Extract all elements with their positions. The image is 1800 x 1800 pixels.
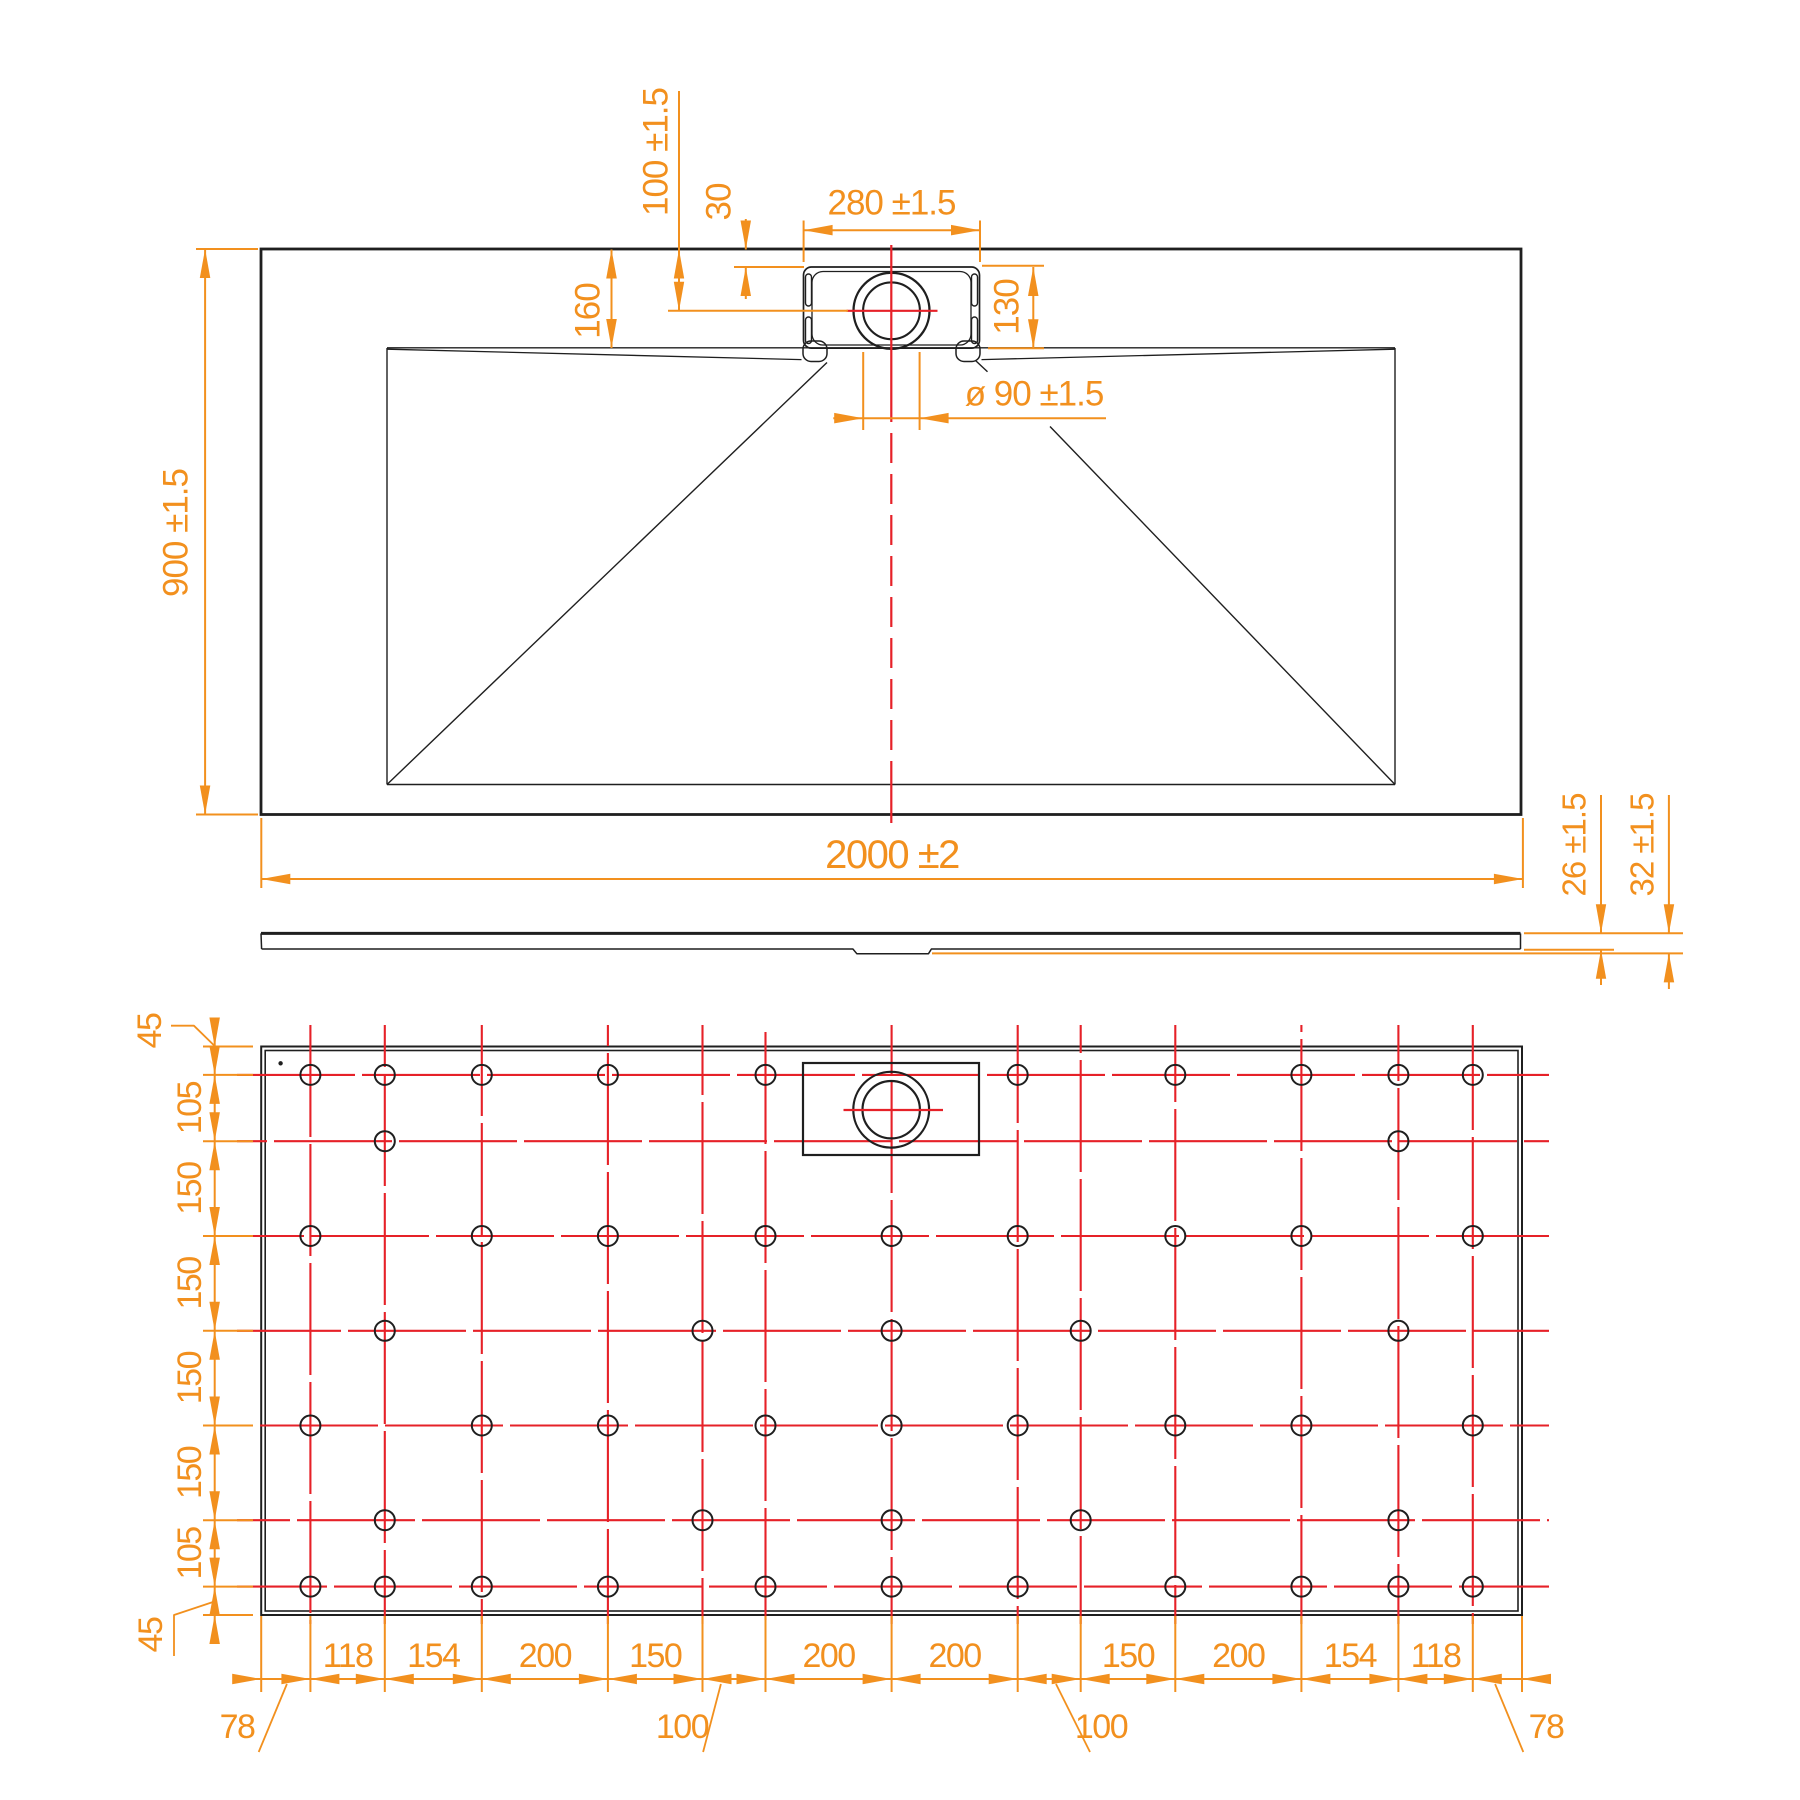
svg-text:150: 150	[629, 1637, 682, 1675]
svg-text:150: 150	[171, 1162, 209, 1215]
svg-text:200: 200	[928, 1637, 981, 1675]
svg-text:200: 200	[519, 1637, 572, 1675]
svg-text:200: 200	[1212, 1637, 1265, 1675]
svg-text:900 ±1.5: 900 ±1.5	[157, 469, 196, 597]
svg-text:130: 130	[988, 279, 1027, 335]
svg-text:150: 150	[1102, 1637, 1155, 1675]
svg-text:32 ±1.5: 32 ±1.5	[1624, 794, 1661, 897]
svg-text:78: 78	[220, 1708, 255, 1746]
svg-text:154: 154	[407, 1637, 460, 1675]
svg-text:118: 118	[323, 1637, 373, 1675]
svg-text:45: 45	[132, 1617, 170, 1652]
svg-text:45: 45	[131, 1013, 169, 1048]
svg-text:2000 ±2: 2000 ±2	[825, 833, 959, 877]
svg-text:78: 78	[1529, 1708, 1564, 1746]
svg-text:160: 160	[569, 283, 608, 339]
svg-text:26 ±1.5: 26 ±1.5	[1556, 794, 1593, 897]
svg-text:150: 150	[171, 1257, 209, 1310]
svg-text:105: 105	[171, 1527, 209, 1580]
svg-text:200: 200	[802, 1637, 855, 1675]
svg-text:100: 100	[656, 1708, 709, 1746]
svg-text:105: 105	[171, 1081, 209, 1134]
svg-text:154: 154	[1324, 1637, 1377, 1675]
svg-text:150: 150	[171, 1351, 209, 1404]
svg-text:100: 100	[1075, 1708, 1128, 1746]
svg-text:280 ±1.5: 280 ±1.5	[828, 184, 956, 223]
svg-text:118: 118	[1411, 1637, 1461, 1675]
svg-text:100 ±1.5: 100 ±1.5	[637, 88, 676, 216]
svg-text:30: 30	[700, 183, 739, 220]
svg-text:150: 150	[171, 1446, 209, 1499]
svg-text:ø 90 ±1.5: ø 90 ±1.5	[965, 375, 1104, 414]
